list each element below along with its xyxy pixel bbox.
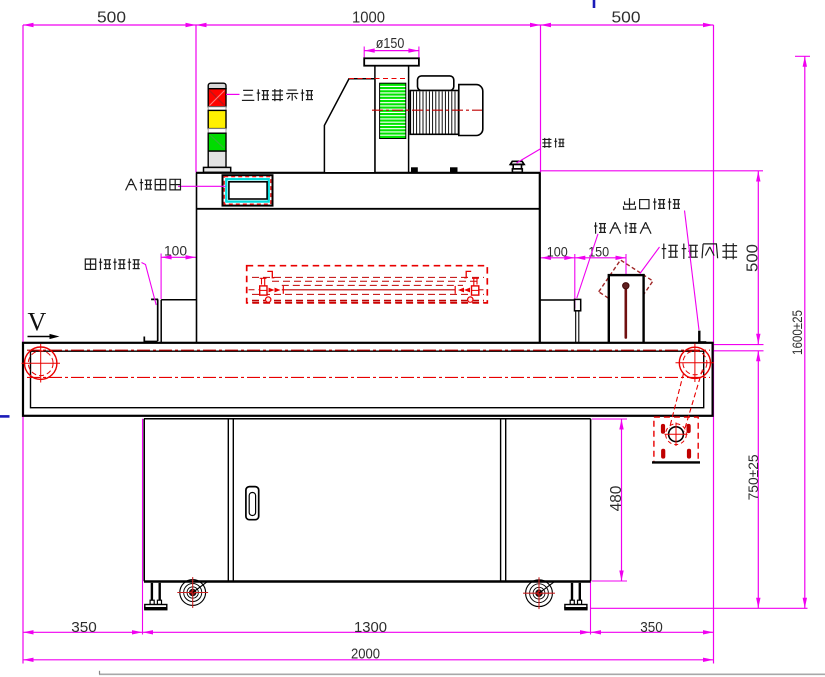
svg-text:100: 100	[547, 244, 568, 259]
svg-text:2000: 2000	[351, 647, 380, 663]
svg-text:480: 480	[608, 485, 625, 511]
svg-text:1000: 1000	[352, 10, 385, 27]
svg-text:500: 500	[612, 10, 641, 27]
svg-text:V: V	[28, 308, 47, 337]
svg-text:1300: 1300	[354, 620, 387, 636]
svg-text:1600±25: 1600±25	[789, 310, 805, 355]
svg-text:500: 500	[745, 244, 762, 272]
svg-text:350: 350	[640, 620, 663, 636]
svg-text:350: 350	[71, 620, 97, 636]
svg-text:500: 500	[97, 10, 126, 27]
svg-text:100: 100	[164, 243, 187, 258]
svg-text:ø150: ø150	[376, 36, 405, 52]
svg-text:150: 150	[588, 244, 609, 259]
svg-text:750±25: 750±25	[745, 454, 761, 500]
